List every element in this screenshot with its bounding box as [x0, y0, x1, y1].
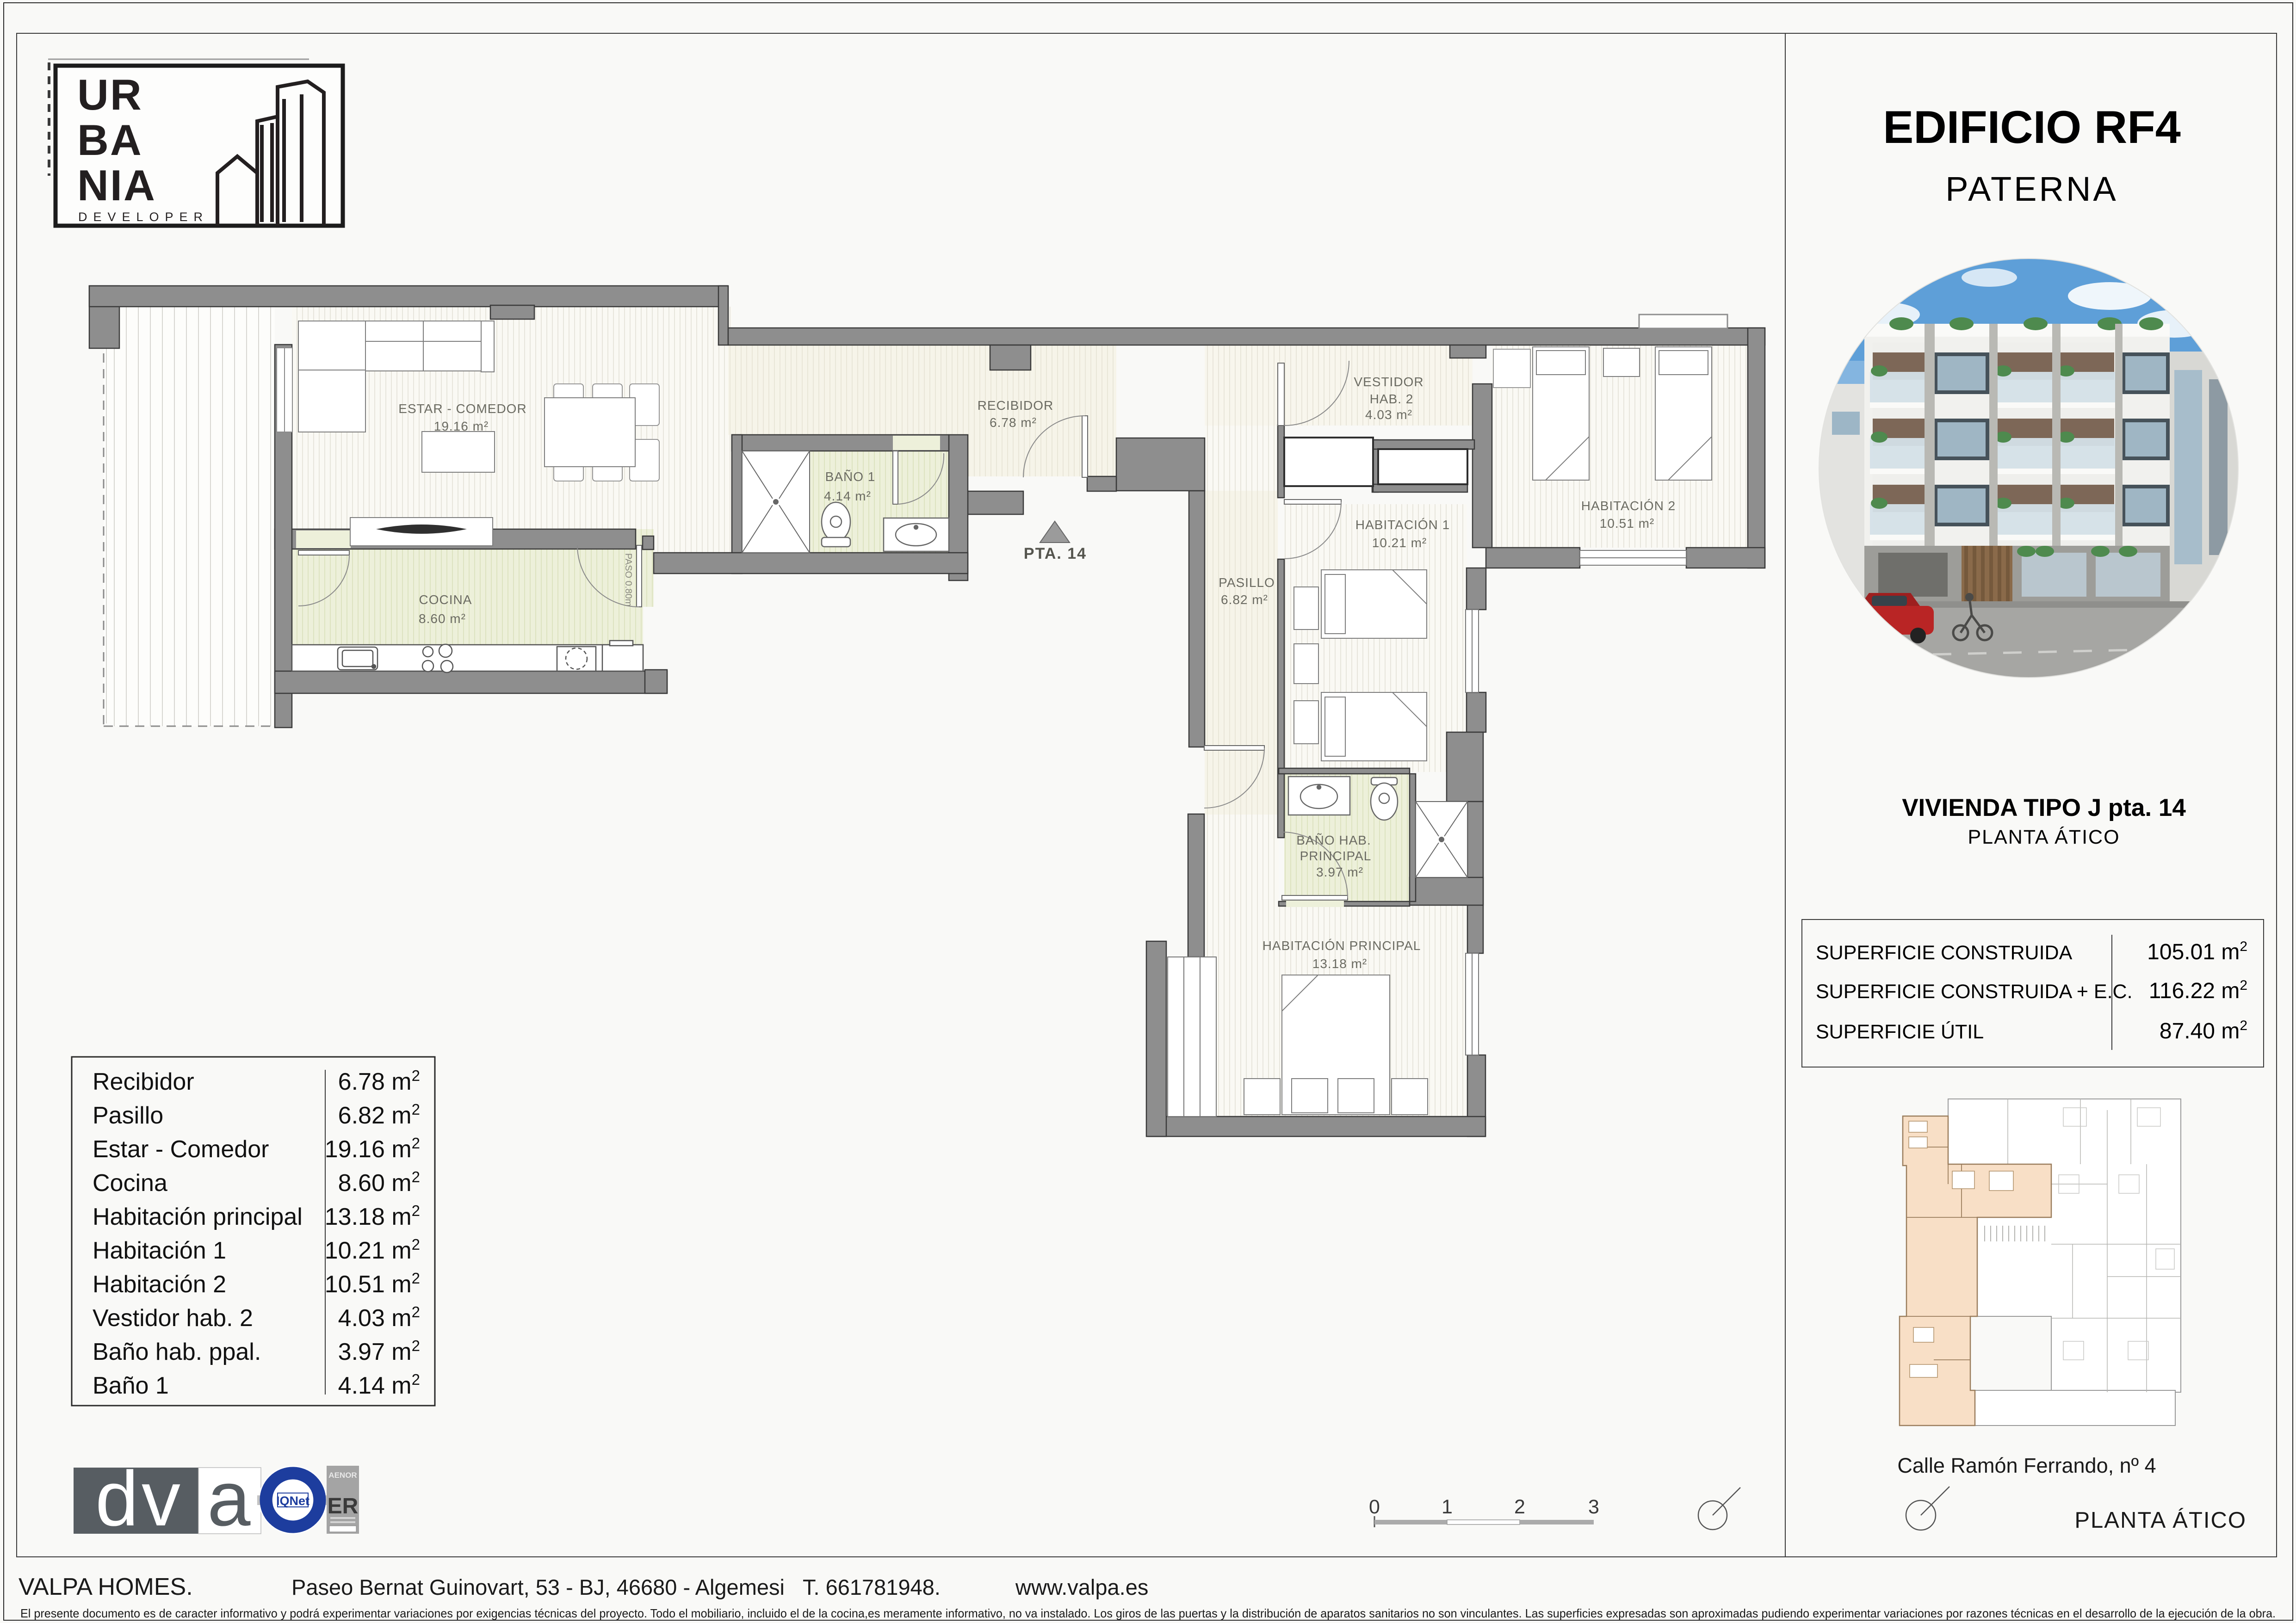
svg-text:PATERNA: PATERNA — [1945, 170, 2118, 208]
svg-text:VIVIENDA TIPO J pta. 14: VIVIENDA TIPO J pta. 14 — [1902, 794, 2186, 821]
svg-text:Habitación principal: Habitación principal — [93, 1203, 303, 1230]
svg-text:10.21 m2: 10.21 m2 — [325, 1236, 420, 1264]
svg-text:6.78 m2: 6.78 m2 — [338, 1067, 420, 1095]
svg-text:8.60 m²: 8.60 m² — [419, 611, 466, 626]
svg-text:105.01 m2: 105.01 m2 — [2147, 939, 2247, 964]
svg-text:d: d — [95, 1455, 138, 1542]
svg-text:PLANTA ÁTICO: PLANTA ÁTICO — [1968, 826, 2120, 848]
svg-text:PLANTA ÁTICO: PLANTA ÁTICO — [2074, 1508, 2246, 1533]
svg-text:HABITACIÓN 2: HABITACIÓN 2 — [1581, 499, 1676, 513]
svg-text:6.82 m2: 6.82 m2 — [338, 1101, 420, 1129]
svg-text:13.18 m²: 13.18 m² — [1312, 957, 1368, 971]
svg-text:ESTAR - COMEDOR: ESTAR - COMEDOR — [398, 401, 526, 416]
svg-text:Paseo Bernat Guinovart, 53 - B: Paseo Bernat Guinovart, 53 - BJ, 46680 -… — [291, 1575, 785, 1599]
svg-text:AENOR: AENOR — [328, 1471, 357, 1480]
svg-text:EDIFICIO RF4: EDIFICIO RF4 — [1883, 101, 2181, 153]
svg-text:HABITACIÓN PRINCIPAL: HABITACIÓN PRINCIPAL — [1262, 938, 1421, 953]
svg-text:UR: UR — [77, 70, 143, 119]
svg-text:1: 1 — [1442, 1496, 1453, 1518]
svg-text:6.82 m²: 6.82 m² — [1221, 592, 1268, 607]
svg-text:Cocina: Cocina — [93, 1170, 167, 1197]
svg-text:PRINCIPAL: PRINCIPAL — [1300, 849, 1372, 863]
svg-text:HABITACIÓN 1: HABITACIÓN 1 — [1355, 518, 1450, 532]
svg-text:El presente documento es de ca: El presente documento es de caracter inf… — [20, 1606, 2276, 1620]
svg-text:SUPERFICIE ÚTIL: SUPERFICIE ÚTIL — [1816, 1021, 1984, 1043]
svg-text:6.78 m²: 6.78 m² — [990, 415, 1037, 430]
svg-text:19.16 m²: 19.16 m² — [434, 419, 489, 433]
svg-text:4.03 m2: 4.03 m2 — [338, 1303, 420, 1332]
svg-text:v: v — [142, 1455, 180, 1542]
svg-text:BA: BA — [77, 116, 143, 164]
svg-text:SUPERFICIE CONSTRUIDA + E.C.: SUPERFICIE CONSTRUIDA + E.C. — [1816, 981, 2133, 1003]
svg-text:DEVELOPER: DEVELOPER — [78, 210, 209, 224]
svg-text:Baño hab. ppal.: Baño hab. ppal. — [93, 1339, 261, 1365]
svg-text:3: 3 — [1588, 1496, 1599, 1518]
svg-text:BAÑO HAB.: BAÑO HAB. — [1296, 833, 1371, 847]
svg-text:RECIBIDOR: RECIBIDOR — [978, 398, 1054, 413]
svg-text:VALPA HOMES.: VALPA HOMES. — [19, 1574, 193, 1600]
svg-text:SUPERFICIE CONSTRUIDA: SUPERFICIE CONSTRUIDA — [1816, 942, 2073, 964]
svg-text:19.16 m2: 19.16 m2 — [325, 1135, 420, 1163]
svg-text:4.03 m²: 4.03 m² — [1365, 407, 1412, 422]
svg-text:Estar - Comedor: Estar - Comedor — [93, 1136, 269, 1163]
svg-text:3.97 m²: 3.97 m² — [1316, 865, 1363, 879]
svg-text:PTA. 14: PTA. 14 — [1024, 545, 1087, 562]
svg-text:10.21 m²: 10.21 m² — [1372, 536, 1427, 550]
svg-text:2: 2 — [1514, 1496, 1525, 1518]
svg-text:10.51 m2: 10.51 m2 — [325, 1270, 420, 1298]
svg-text:PASILLO: PASILLO — [1219, 575, 1275, 590]
svg-text:4.14 m²: 4.14 m² — [824, 489, 871, 503]
svg-text:Baño 1: Baño 1 — [93, 1372, 169, 1399]
svg-text:8.60 m2: 8.60 m2 — [338, 1168, 420, 1197]
svg-text:Habitación 1: Habitación 1 — [93, 1237, 226, 1264]
svg-text:Pasillo: Pasillo — [93, 1102, 163, 1129]
svg-text:HAB. 2: HAB. 2 — [1370, 392, 1414, 406]
svg-text:a: a — [207, 1455, 251, 1542]
svg-text:13.18 m2: 13.18 m2 — [325, 1202, 420, 1230]
svg-text:T. 661781948.: T. 661781948. — [803, 1575, 941, 1599]
svg-text:ER: ER — [328, 1494, 359, 1518]
svg-text:116.22 m2: 116.22 m2 — [2149, 978, 2247, 1003]
svg-text:PASO 0.80m: PASO 0.80m — [623, 553, 633, 606]
svg-text:Calle Ramón Ferrando, nº 4: Calle Ramón Ferrando, nº 4 — [1897, 1454, 2156, 1477]
svg-text:10.51 m²: 10.51 m² — [1600, 516, 1655, 531]
svg-text:www.valpa.es: www.valpa.es — [1015, 1575, 1148, 1599]
svg-text:4.14 m2: 4.14 m2 — [338, 1371, 420, 1399]
svg-text:Habitación 2: Habitación 2 — [93, 1271, 226, 1298]
svg-text:87.40 m2: 87.40 m2 — [2160, 1018, 2247, 1043]
svg-text:IQNet: IQNet — [276, 1494, 309, 1508]
svg-text:3.97 m2: 3.97 m2 — [338, 1337, 420, 1365]
svg-text:Recibidor: Recibidor — [93, 1068, 194, 1095]
svg-text:NIA: NIA — [77, 161, 156, 210]
svg-text:COCINA: COCINA — [419, 592, 472, 607]
svg-text:0: 0 — [1369, 1496, 1380, 1518]
svg-text:Vestidor hab. 2: Vestidor hab. 2 — [93, 1305, 253, 1332]
svg-text:VESTIDOR: VESTIDOR — [1354, 375, 1423, 389]
svg-text:BAÑO 1: BAÑO 1 — [825, 469, 876, 484]
